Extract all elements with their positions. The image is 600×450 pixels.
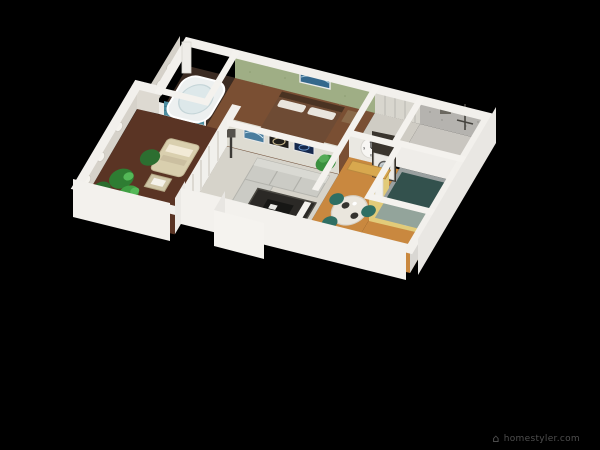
watermark-text: homestyler.com bbox=[504, 434, 580, 444]
wall-column bbox=[182, 42, 191, 73]
clock-number-6: 6 bbox=[370, 154, 372, 158]
clock-number-9: 9 bbox=[363, 146, 365, 150]
floorplan-render-canvas: 12 3 6 9 bbox=[0, 0, 600, 450]
floorplan-3d-scene: 12 3 6 9 bbox=[0, 0, 600, 450]
watermark: ⌂ homestyler.com bbox=[492, 433, 580, 444]
homestyler-logo-icon: ⌂ bbox=[492, 433, 499, 444]
floor-lamp-shade bbox=[227, 129, 236, 138]
